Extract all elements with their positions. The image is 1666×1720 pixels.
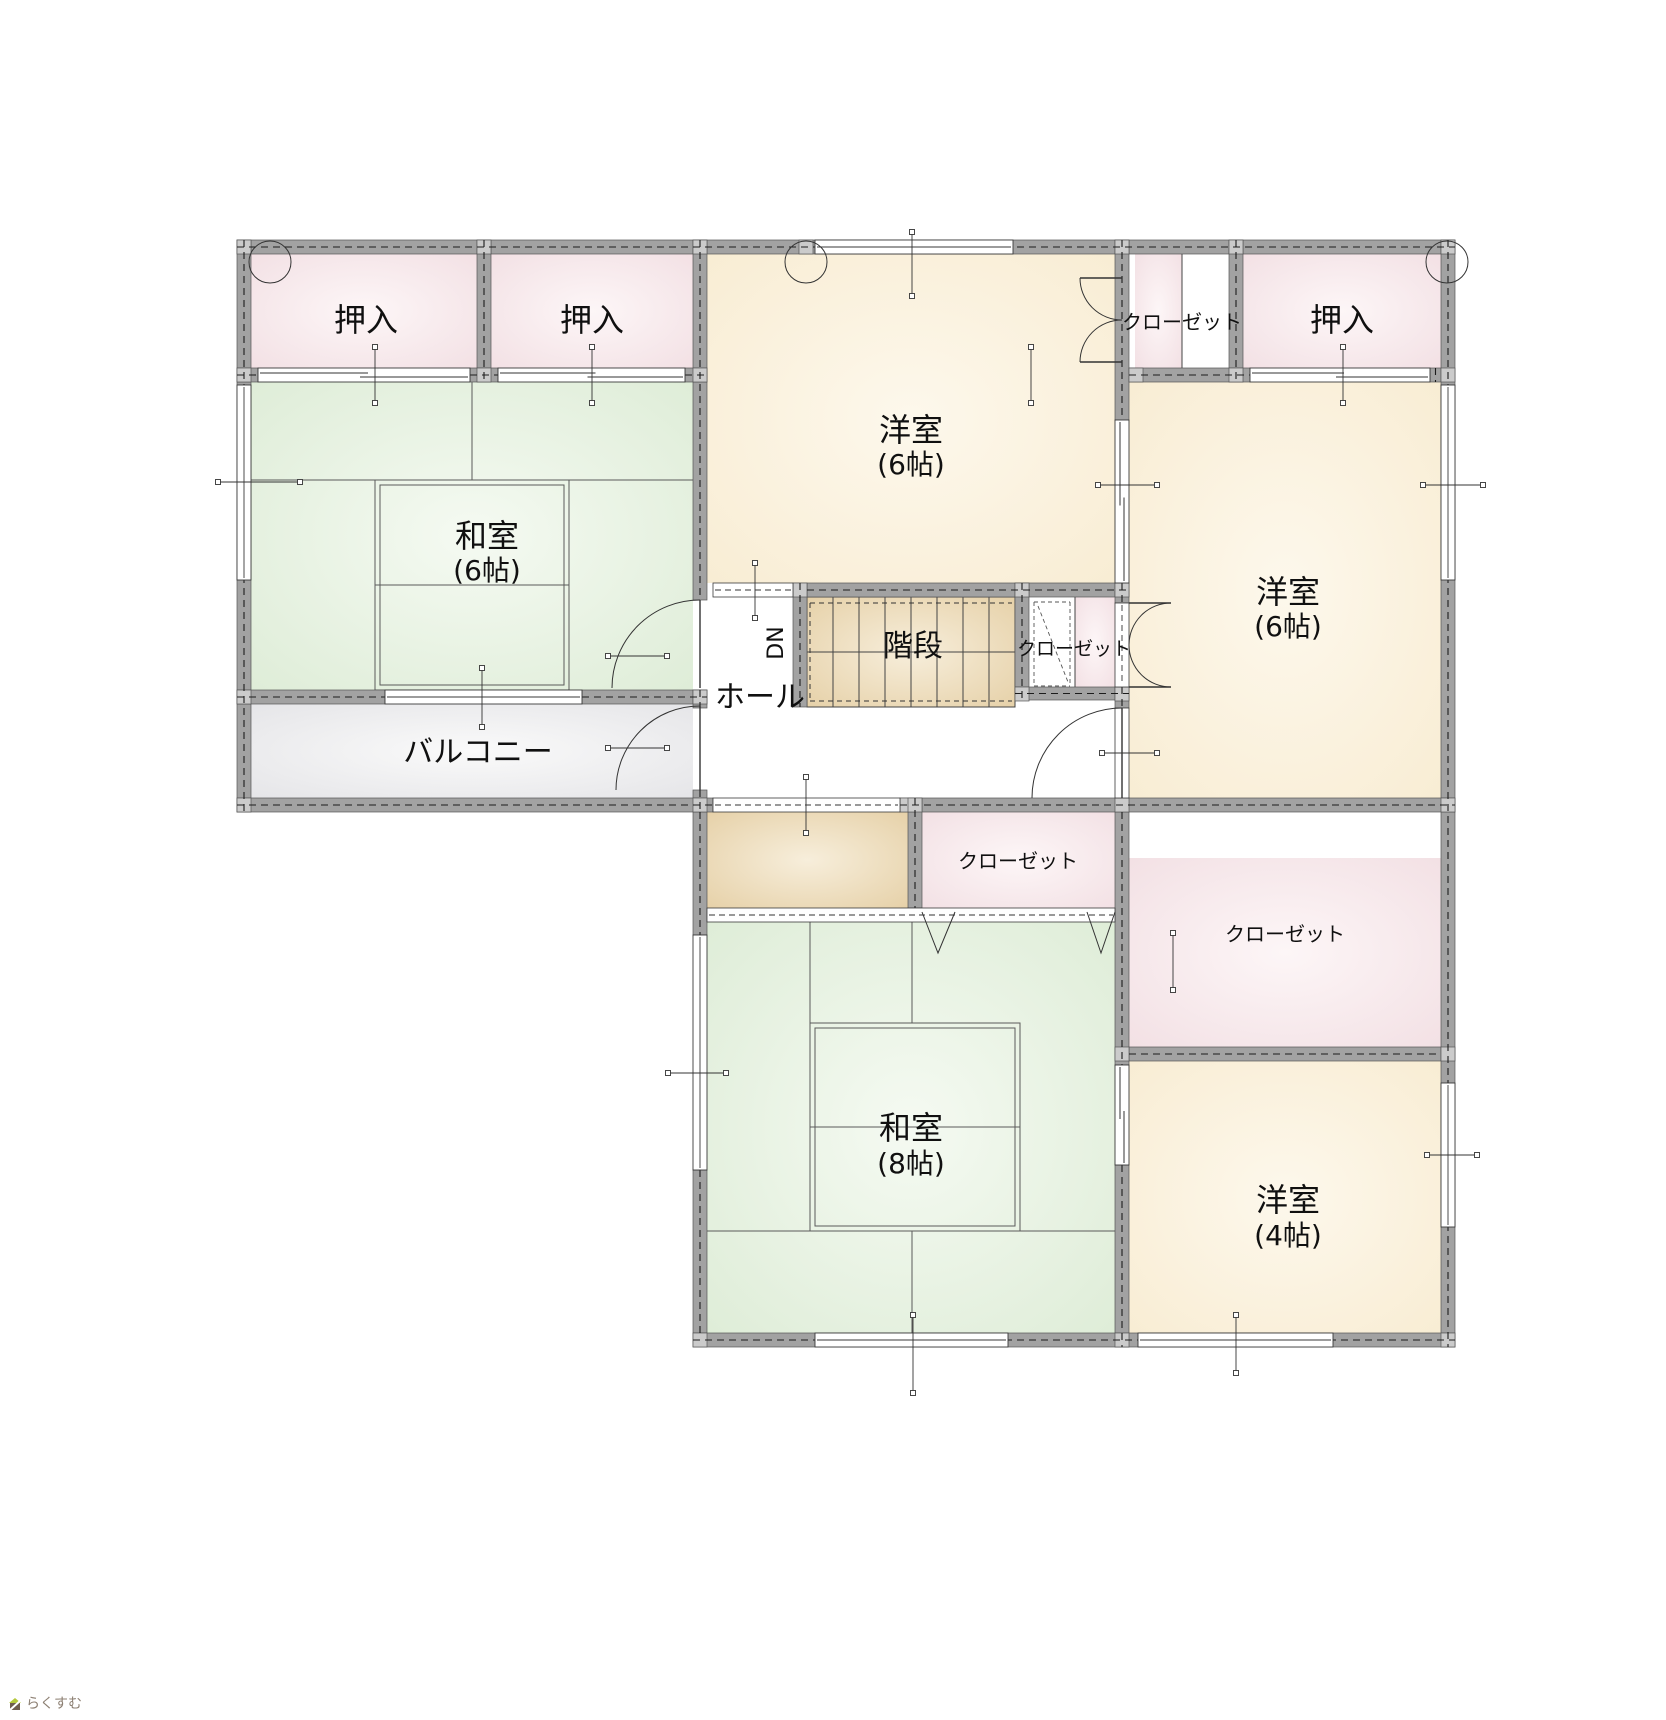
label-yoshitsu-6-right-size: (6帖) [1254, 610, 1322, 643]
label-yoshitsu-4: 洋室 [1256, 1181, 1320, 1219]
dimension-marker-end [216, 480, 221, 485]
dimension-marker-end [298, 480, 303, 485]
sliding-door [1115, 1065, 1129, 1165]
label-closet-right: クローゼット [1225, 922, 1345, 946]
room-fill-landing [707, 812, 908, 908]
floor-plan-page: 押入押入押入クローゼット和室(6帖)洋室(6帖)洋室(6帖)バルコニーホール階段… [0, 0, 1666, 1720]
label-stairs: 階段 [883, 629, 943, 664]
label-yoshitsu-6-right: 洋室 [1256, 573, 1320, 611]
dimension-marker-end [804, 775, 809, 780]
dimension-marker-end [373, 401, 378, 406]
label-yoshitsu-6-middle-size: (6帖) [877, 448, 945, 481]
dimension-marker-end [1234, 1313, 1239, 1318]
dimension-marker-end [480, 725, 485, 730]
dimension-marker-end [606, 746, 611, 751]
watermark-text: らくすむ [26, 1697, 82, 1711]
label-oshiire-left-1: 押入 [334, 301, 398, 339]
dimension-marker-end [1341, 345, 1346, 350]
dimension-marker-end [1100, 751, 1105, 756]
dimension-marker-end [1029, 401, 1034, 406]
dimension-marker-end [1341, 401, 1346, 406]
dimension-marker-end [1155, 483, 1160, 488]
wall [237, 798, 713, 812]
sliding-door [258, 368, 470, 382]
label-washitsu-8-size: (8帖) [877, 1147, 945, 1180]
dimension-marker-end [1096, 483, 1101, 488]
watermark: らくすむ [8, 1697, 82, 1711]
dimension-marker-end [1481, 483, 1486, 488]
dimension-marker-end [590, 345, 595, 350]
label-oshiire-left-2: 押入 [560, 301, 624, 339]
sliding-door [1115, 420, 1129, 583]
label-washitsu-6-size: (6帖) [453, 554, 521, 587]
dimension-marker-end [1234, 1371, 1239, 1376]
dimension-marker-end [910, 230, 915, 235]
dimension-marker-end [666, 1071, 671, 1076]
dimension-marker-end [1421, 483, 1426, 488]
dimension-marker-end [1425, 1153, 1430, 1158]
label-stair-closet: クローゼット [1017, 638, 1131, 660]
label-washitsu-8: 和室 [879, 1109, 943, 1147]
dimension-marker-end [665, 654, 670, 659]
label-dn: DN [764, 626, 789, 659]
label-balcony: バルコニー [403, 735, 552, 770]
label-closet-middle: クローゼット [958, 849, 1078, 873]
dimension-marker-end [753, 561, 758, 566]
dimension-marker-end [1171, 931, 1176, 936]
room-fill-closet-right [1129, 858, 1441, 1047]
label-yoshitsu-6-middle: 洋室 [879, 411, 943, 449]
sliding-door [1250, 368, 1430, 382]
label-closet-top-right: クローゼット [1122, 310, 1242, 334]
dimension-marker-end [910, 294, 915, 299]
dimension-marker-end [753, 616, 758, 621]
dimension-marker-end [1171, 988, 1176, 993]
dimension-marker-end [911, 1391, 916, 1396]
label-oshiire-right: 押入 [1310, 301, 1374, 339]
label-yoshitsu-4-size: (4帖) [1254, 1219, 1322, 1252]
sliding-door [498, 368, 685, 382]
dimension-marker-end [724, 1071, 729, 1076]
label-washitsu-6: 和室 [455, 517, 519, 555]
dimension-marker-end [373, 345, 378, 350]
dimension-marker-end [590, 401, 595, 406]
dimension-marker-end [606, 654, 611, 659]
dimension-marker-end [804, 831, 809, 836]
rakusumu-house-icon [8, 1697, 22, 1711]
dimension-marker-end [1155, 751, 1160, 756]
dimension-marker-end [911, 1313, 916, 1318]
dimension-marker-end [665, 746, 670, 751]
dimension-marker-end [1029, 345, 1034, 350]
dimension-marker-end [480, 666, 485, 671]
dimension-marker-end [1475, 1153, 1480, 1158]
floor-plan: 押入押入押入クローゼット和室(6帖)洋室(6帖)洋室(6帖)バルコニーホール階段… [0, 0, 1666, 1720]
label-hall: ホール [715, 680, 805, 715]
